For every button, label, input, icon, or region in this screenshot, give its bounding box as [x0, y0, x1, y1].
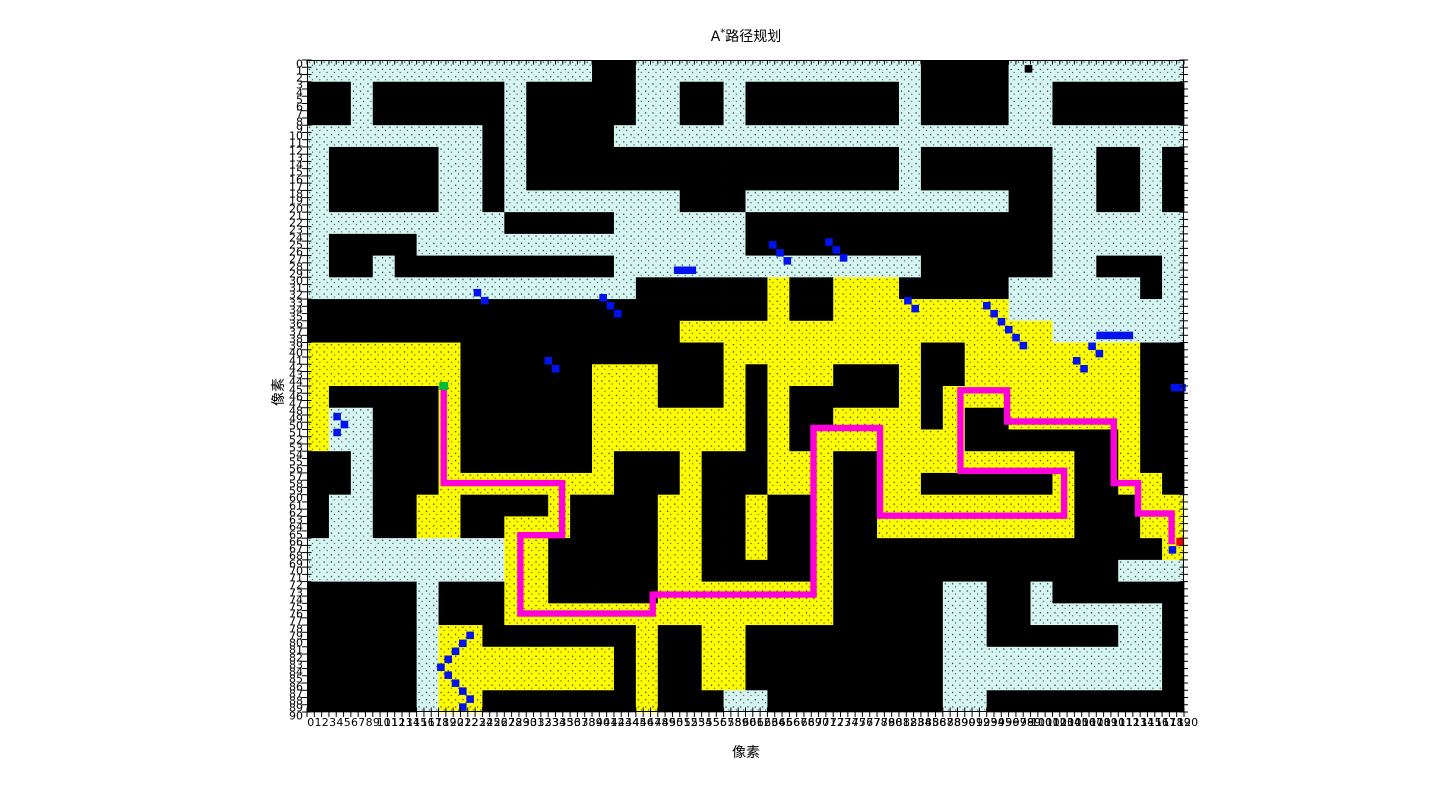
x-tick-label: 5 [344, 717, 351, 728]
chart-title-rest: 路径规划 [725, 29, 781, 45]
chart-title: A*路径规划 [711, 26, 782, 46]
x-tick-label: 4 [336, 717, 343, 728]
x-tick-label: 3 [329, 717, 336, 728]
x-tick-label: 6 [351, 717, 358, 728]
x-tick-label: 1 [315, 717, 322, 728]
x-tick-label: 120 [1177, 717, 1198, 728]
x-tick-label: 0 [307, 717, 314, 728]
x-axis-label: 像素 [732, 742, 760, 762]
chart-title-prefix: A [711, 29, 721, 45]
y-tick-label: 90 [289, 710, 303, 721]
x-tick-label: 2 [322, 717, 329, 728]
y-axis-label: 像素 [268, 378, 288, 406]
figure-canvas: A*路径规划 像素 012345678910111213141516171819… [0, 0, 1439, 812]
maze-plot [307, 60, 1184, 712]
x-tick-label: 7 [358, 717, 365, 728]
x-tick-label: 8 [366, 717, 373, 728]
